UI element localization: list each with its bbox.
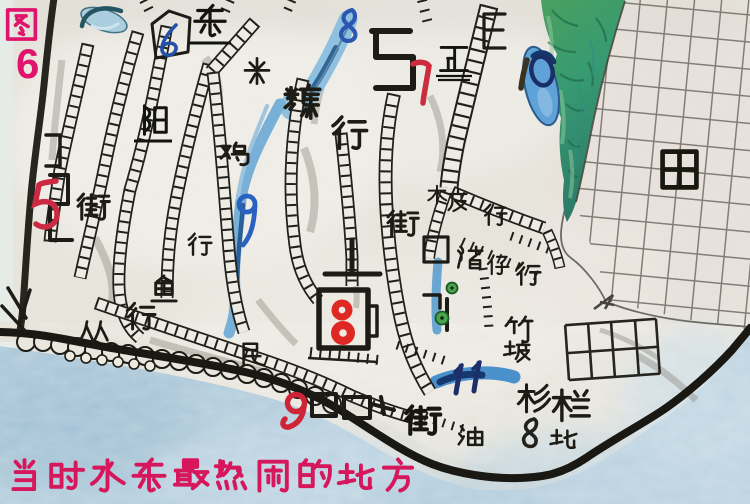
svg-text:6: 6 (16, 40, 39, 87)
